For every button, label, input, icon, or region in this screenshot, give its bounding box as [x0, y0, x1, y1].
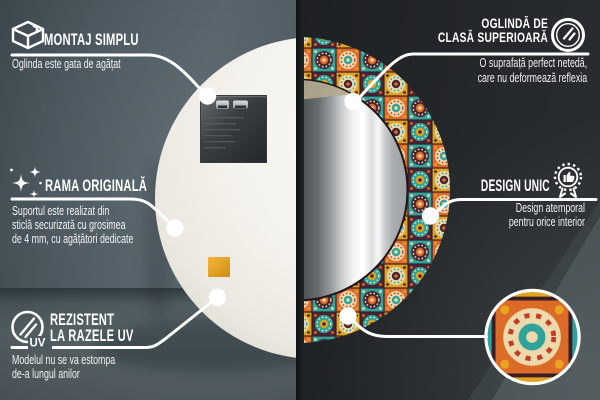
callout-subtitle-design: Design atemporal pentru orice interior: [509, 201, 585, 230]
callout-dot-uv: [209, 289, 226, 306]
title-line: LA RAZELE UV: [50, 328, 134, 344]
uv-resistant-icon: UV: [8, 308, 54, 352]
callout-subtitle-montaj: Oglinda este gata de agățat: [12, 57, 121, 71]
adhesive-pad: [208, 257, 230, 277]
subtitle-line: Modelul nu se va estompa: [12, 353, 115, 367]
subtitle-line: O suprafață perfect netedă,: [477, 56, 587, 71]
product-infographic: MONTAJ SIMPLU Oglinda este gata de agăța…: [0, 0, 600, 400]
title-line: OGLINDĂ DE: [438, 17, 548, 32]
thumb-up-glyph: [564, 172, 575, 182]
callout-subtitle-rama: Suportul este realizat din sticlă securi…: [12, 204, 133, 247]
subtitle-line: sticlă securizată cu grosimea: [12, 218, 133, 232]
subtitle-line: Suportul este realizat din: [12, 204, 133, 218]
callout-title-uv: REZISTENT LA RAZELE UV: [50, 312, 134, 344]
subtitle-line: Design atemporal: [509, 201, 585, 216]
callout-title-design: DESIGN UNIC: [481, 176, 550, 196]
callout-subtitle-uv: Modelul nu se va estompa de-a lungul ani…: [12, 353, 115, 382]
sparkles-icon: [7, 162, 45, 204]
callout-dot-detail: [339, 307, 356, 324]
scene-divider: [296, 0, 304, 400]
package-box-icon: [9, 17, 47, 51]
award-badge-icon: [551, 162, 585, 202]
callout-title-premium: OGLINDĂ DE CLASĂ SUPERIOARĂ: [438, 17, 548, 46]
callout-subtitle-premium: O suprafață perfect netedă, care nu defo…: [477, 56, 587, 85]
subtitle-line: Oglinda este gata de agățat: [12, 57, 121, 71]
uv-icon-label: UV: [30, 338, 46, 350]
callout-dot-design: [422, 207, 439, 224]
premium-mirror-icon: [549, 16, 587, 54]
subtitle-line: de-a lungul anilor: [12, 367, 115, 381]
callout-title-montaj: MONTAJ SIMPLU: [44, 32, 139, 48]
pattern-detail-zoom: [485, 290, 579, 383]
subtitle-line: pentru orice interior: [509, 215, 585, 230]
callout-dot-montaj: [199, 87, 216, 104]
callout-dot-premium: [344, 93, 361, 110]
subtitle-line: de 4 mm, cu agățători dedicate: [12, 232, 133, 246]
callout-dot-rama: [166, 219, 183, 236]
subtitle-line: care nu deformează reflexia: [477, 71, 587, 86]
mounting-plate: [201, 96, 267, 163]
title-line: CLASĂ SUPERIOARĂ: [438, 31, 548, 46]
callout-title-rama: RAMA ORIGINALĂ: [45, 178, 147, 194]
